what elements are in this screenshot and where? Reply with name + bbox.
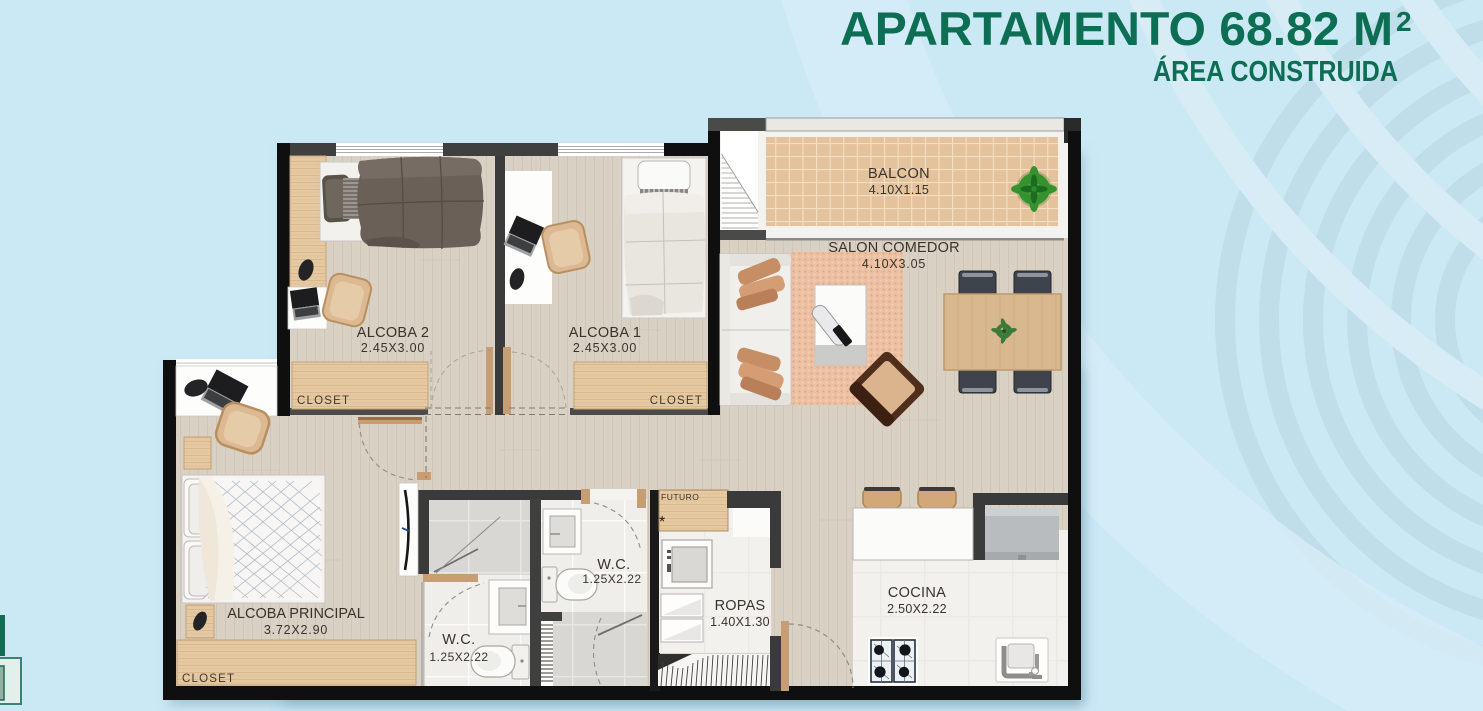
svg-text:*: * bbox=[659, 514, 665, 531]
svg-text:BALCON: BALCON bbox=[868, 166, 930, 182]
svg-text:FUTURO: FUTURO bbox=[661, 492, 699, 502]
svg-text:2.50X2.22: 2.50X2.22 bbox=[887, 602, 947, 616]
svg-text:ÁREA CONSTRUIDA: ÁREA CONSTRUIDA bbox=[1153, 56, 1398, 88]
svg-text:COCINA: COCINA bbox=[888, 585, 946, 601]
svg-text:4.10X1.15: 4.10X1.15 bbox=[869, 183, 930, 197]
svg-text:ALCOBA 2: ALCOBA 2 bbox=[357, 325, 430, 341]
svg-text:3.72X2.90: 3.72X2.90 bbox=[264, 623, 328, 637]
svg-text:4.10X3.05: 4.10X3.05 bbox=[862, 257, 926, 271]
svg-text:CLOSET: CLOSET bbox=[650, 395, 703, 407]
svg-text:SALON COMEDOR: SALON COMEDOR bbox=[828, 240, 960, 256]
svg-text:ALCOBA PRINCIPAL: ALCOBA PRINCIPAL bbox=[227, 606, 365, 622]
svg-text:ALCOBA 1: ALCOBA 1 bbox=[569, 325, 642, 341]
svg-text:CLOSET: CLOSET bbox=[297, 395, 350, 407]
svg-text:1.40X1.30: 1.40X1.30 bbox=[710, 615, 770, 629]
svg-text:APARTAMENTO 68.82 M: APARTAMENTO 68.82 M bbox=[840, 2, 1393, 55]
svg-text:CLOSET: CLOSET bbox=[182, 673, 235, 685]
svg-text:W.C.: W.C. bbox=[442, 632, 475, 648]
svg-text:W.C.: W.C. bbox=[597, 557, 630, 573]
svg-text:ROPAS: ROPAS bbox=[715, 598, 766, 614]
svg-text:2: 2 bbox=[1396, 6, 1412, 37]
svg-text:1.25X2.22: 1.25X2.22 bbox=[582, 572, 641, 586]
svg-text:2.45X3.00: 2.45X3.00 bbox=[573, 341, 637, 355]
svg-text:2.45X3.00: 2.45X3.00 bbox=[361, 341, 425, 355]
svg-text:1.25X2.22: 1.25X2.22 bbox=[429, 650, 488, 664]
